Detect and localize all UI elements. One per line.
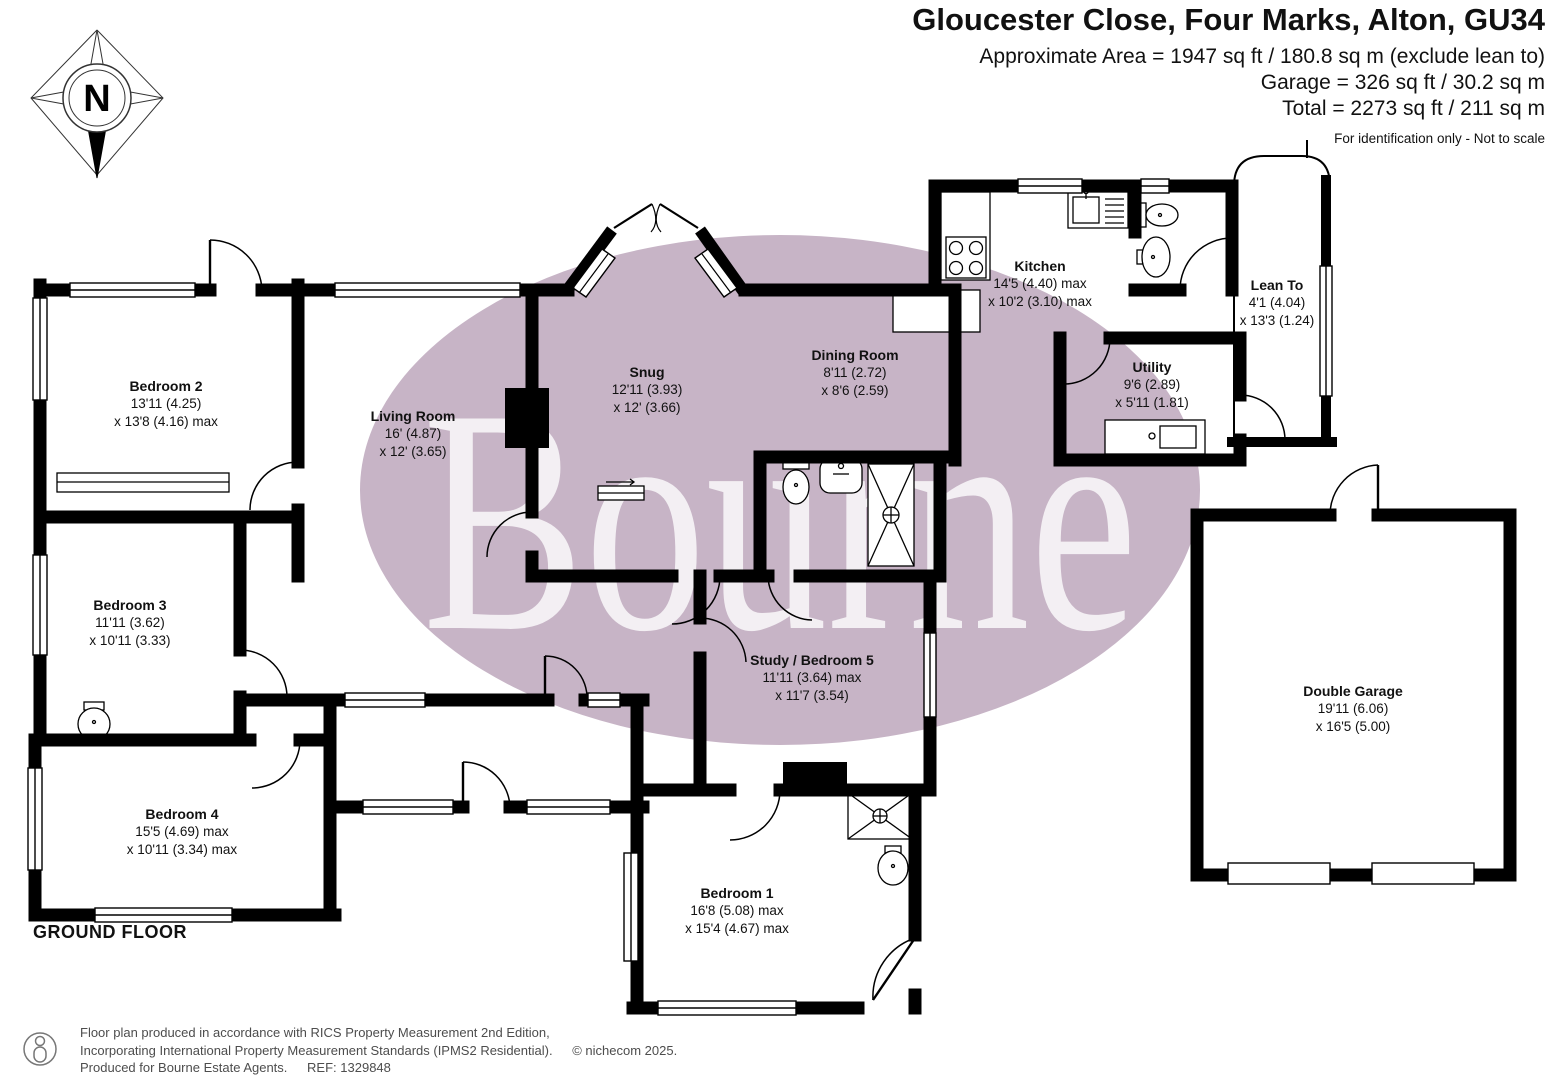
room-label-snug: Snug12'11 (3.93)x 12' (3.66) [612,363,683,417]
bathroom-basin-icon [820,459,862,493]
approx-area-line: Approximate Area = 1947 sq ft / 180.8 sq… [912,44,1545,70]
room-label-bedroom-4: Bedroom 415'5 (4.69) maxx 10'11 (3.34) m… [127,805,237,859]
chimney-breast [505,388,549,448]
room-label-bedroom-3: Bedroom 311'11 (3.62)x 10'11 (3.33) [89,596,170,650]
footer-ref: REF: 1329848 [307,1060,391,1075]
total-area-line: Total = 2273 sq ft / 211 sq m [912,96,1545,122]
compass-north-label: N [83,78,110,120]
footer-legal: Floor plan produced in accordance with R… [80,1024,677,1077]
utility-sink-icon [1105,420,1205,454]
wardrobe [57,473,229,492]
room-label-double-garage: Double Garage19'11 (6.06)x 16'5 (5.00) [1303,682,1403,736]
room-label-bedroom-1: Bedroom 116'8 (5.08) maxx 15'4 (4.67) ma… [685,884,789,938]
kitchen-sink-icon [1068,189,1128,229]
floorplan-page: Bourne N [0,0,1555,1080]
footer-line-1: Floor plan produced in accordance with R… [80,1024,677,1042]
room-label-bedroom-2: Bedroom 213'11 (4.25)x 13'8 (4.16) max [114,377,218,431]
room-label-kitchen: Kitchen14'5 (4.40) maxx 10'2 (3.10) max [988,257,1092,311]
footer-line-3: Produced for Bourne Estate Agents. [80,1060,287,1075]
disclaimer: For identification only - Not to scale [912,131,1545,146]
room-label-utility: Utility9'6 (2.89)x 5'11 (1.81) [1115,358,1189,412]
wall-pillar [783,762,847,792]
french-doors [614,204,698,232]
room-label-living-room: Living Room16' (4.87)x 12' (3.65) [371,407,456,461]
bathroom-toilet-icon [783,460,809,504]
shower-icon [868,464,914,566]
page-title: Gloucester Close, Four Marks, Alton, GU3… [912,2,1545,38]
ensuite-basin-icon [878,846,908,885]
wc-toilet-icon [1137,203,1178,227]
room-label-study-bedroom-5: Study / Bedroom 511'11 (3.64) maxx 11'7 … [750,651,874,705]
nichecom-logo-icon [24,1033,56,1065]
ensuite-shower-icon [848,793,912,839]
room-label-dining-room: Dining Room8'11 (2.72)x 8'6 (2.59) [811,346,898,400]
footer-line-2: Incorporating International Property Mea… [80,1043,553,1058]
header: Gloucester Close, Four Marks, Alton, GU3… [912,2,1545,146]
wc-basin-icon [1137,237,1170,277]
compass-rose-icon: N [31,30,163,178]
floor-label: GROUND FLOOR [33,922,187,943]
footer-copyright: © nichecom 2025. [572,1043,677,1058]
room-label-lean-to: Lean To4'1 (4.04)x 13'3 (1.24) [1240,276,1315,330]
garage-area-line: Garage = 326 sq ft / 30.2 sq m [912,70,1545,96]
